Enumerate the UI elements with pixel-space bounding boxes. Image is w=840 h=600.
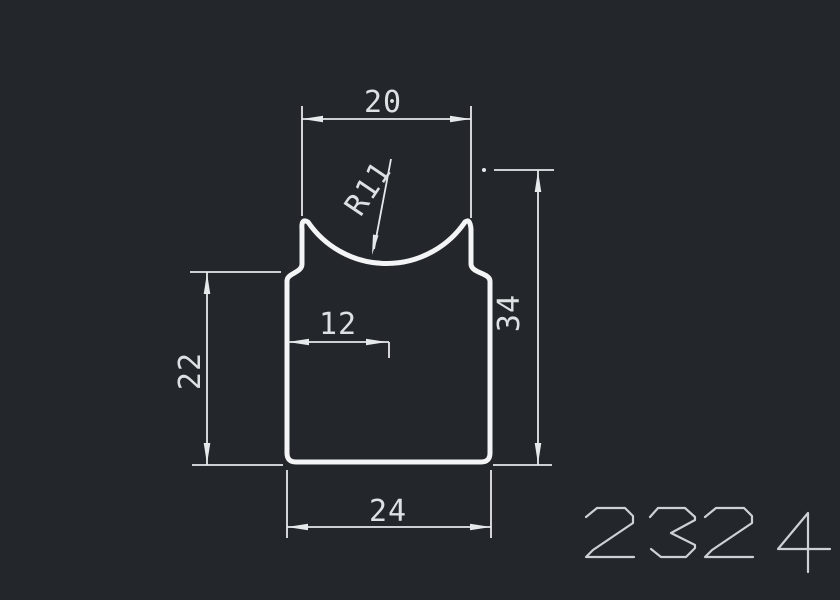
part-number [586, 508, 830, 572]
arrowhead [204, 443, 211, 464]
arrowhead [450, 116, 471, 123]
dim-inner-width-group: 12 [288, 307, 389, 358]
center-point-dot [482, 168, 486, 172]
dim-top-width-label: 20 [364, 85, 402, 120]
part-number-glyph [650, 508, 695, 557]
arrowhead [366, 339, 387, 346]
dim-top-width-group: 20 [302, 85, 471, 218]
dim-bottom-width-label: 24 [369, 494, 407, 529]
arrowhead [535, 171, 542, 192]
dim-right-height-label: 34 [492, 294, 527, 332]
dim-right-height-group: 34 [482, 168, 554, 465]
arrowhead [372, 235, 379, 256]
arrowhead [470, 524, 491, 531]
dim-left-height-group: 22 [173, 272, 283, 465]
arrowhead [287, 524, 308, 531]
dim-bottom-width-group: 24 [287, 470, 491, 538]
arrowhead [204, 273, 211, 294]
dim-inner-width-label: 12 [319, 307, 357, 342]
dim-left-height-label: 22 [173, 352, 208, 390]
part-number-glyph [705, 508, 753, 557]
part-number-glyph [778, 513, 830, 572]
arrowhead [288, 339, 309, 346]
part-number-glyph [586, 508, 634, 557]
arrowhead [302, 116, 323, 123]
dim-radius-group: R11 [338, 155, 399, 255]
arrowhead [535, 443, 542, 464]
cad-drawing: 20 R11 22 12 34 24 [0, 0, 840, 600]
